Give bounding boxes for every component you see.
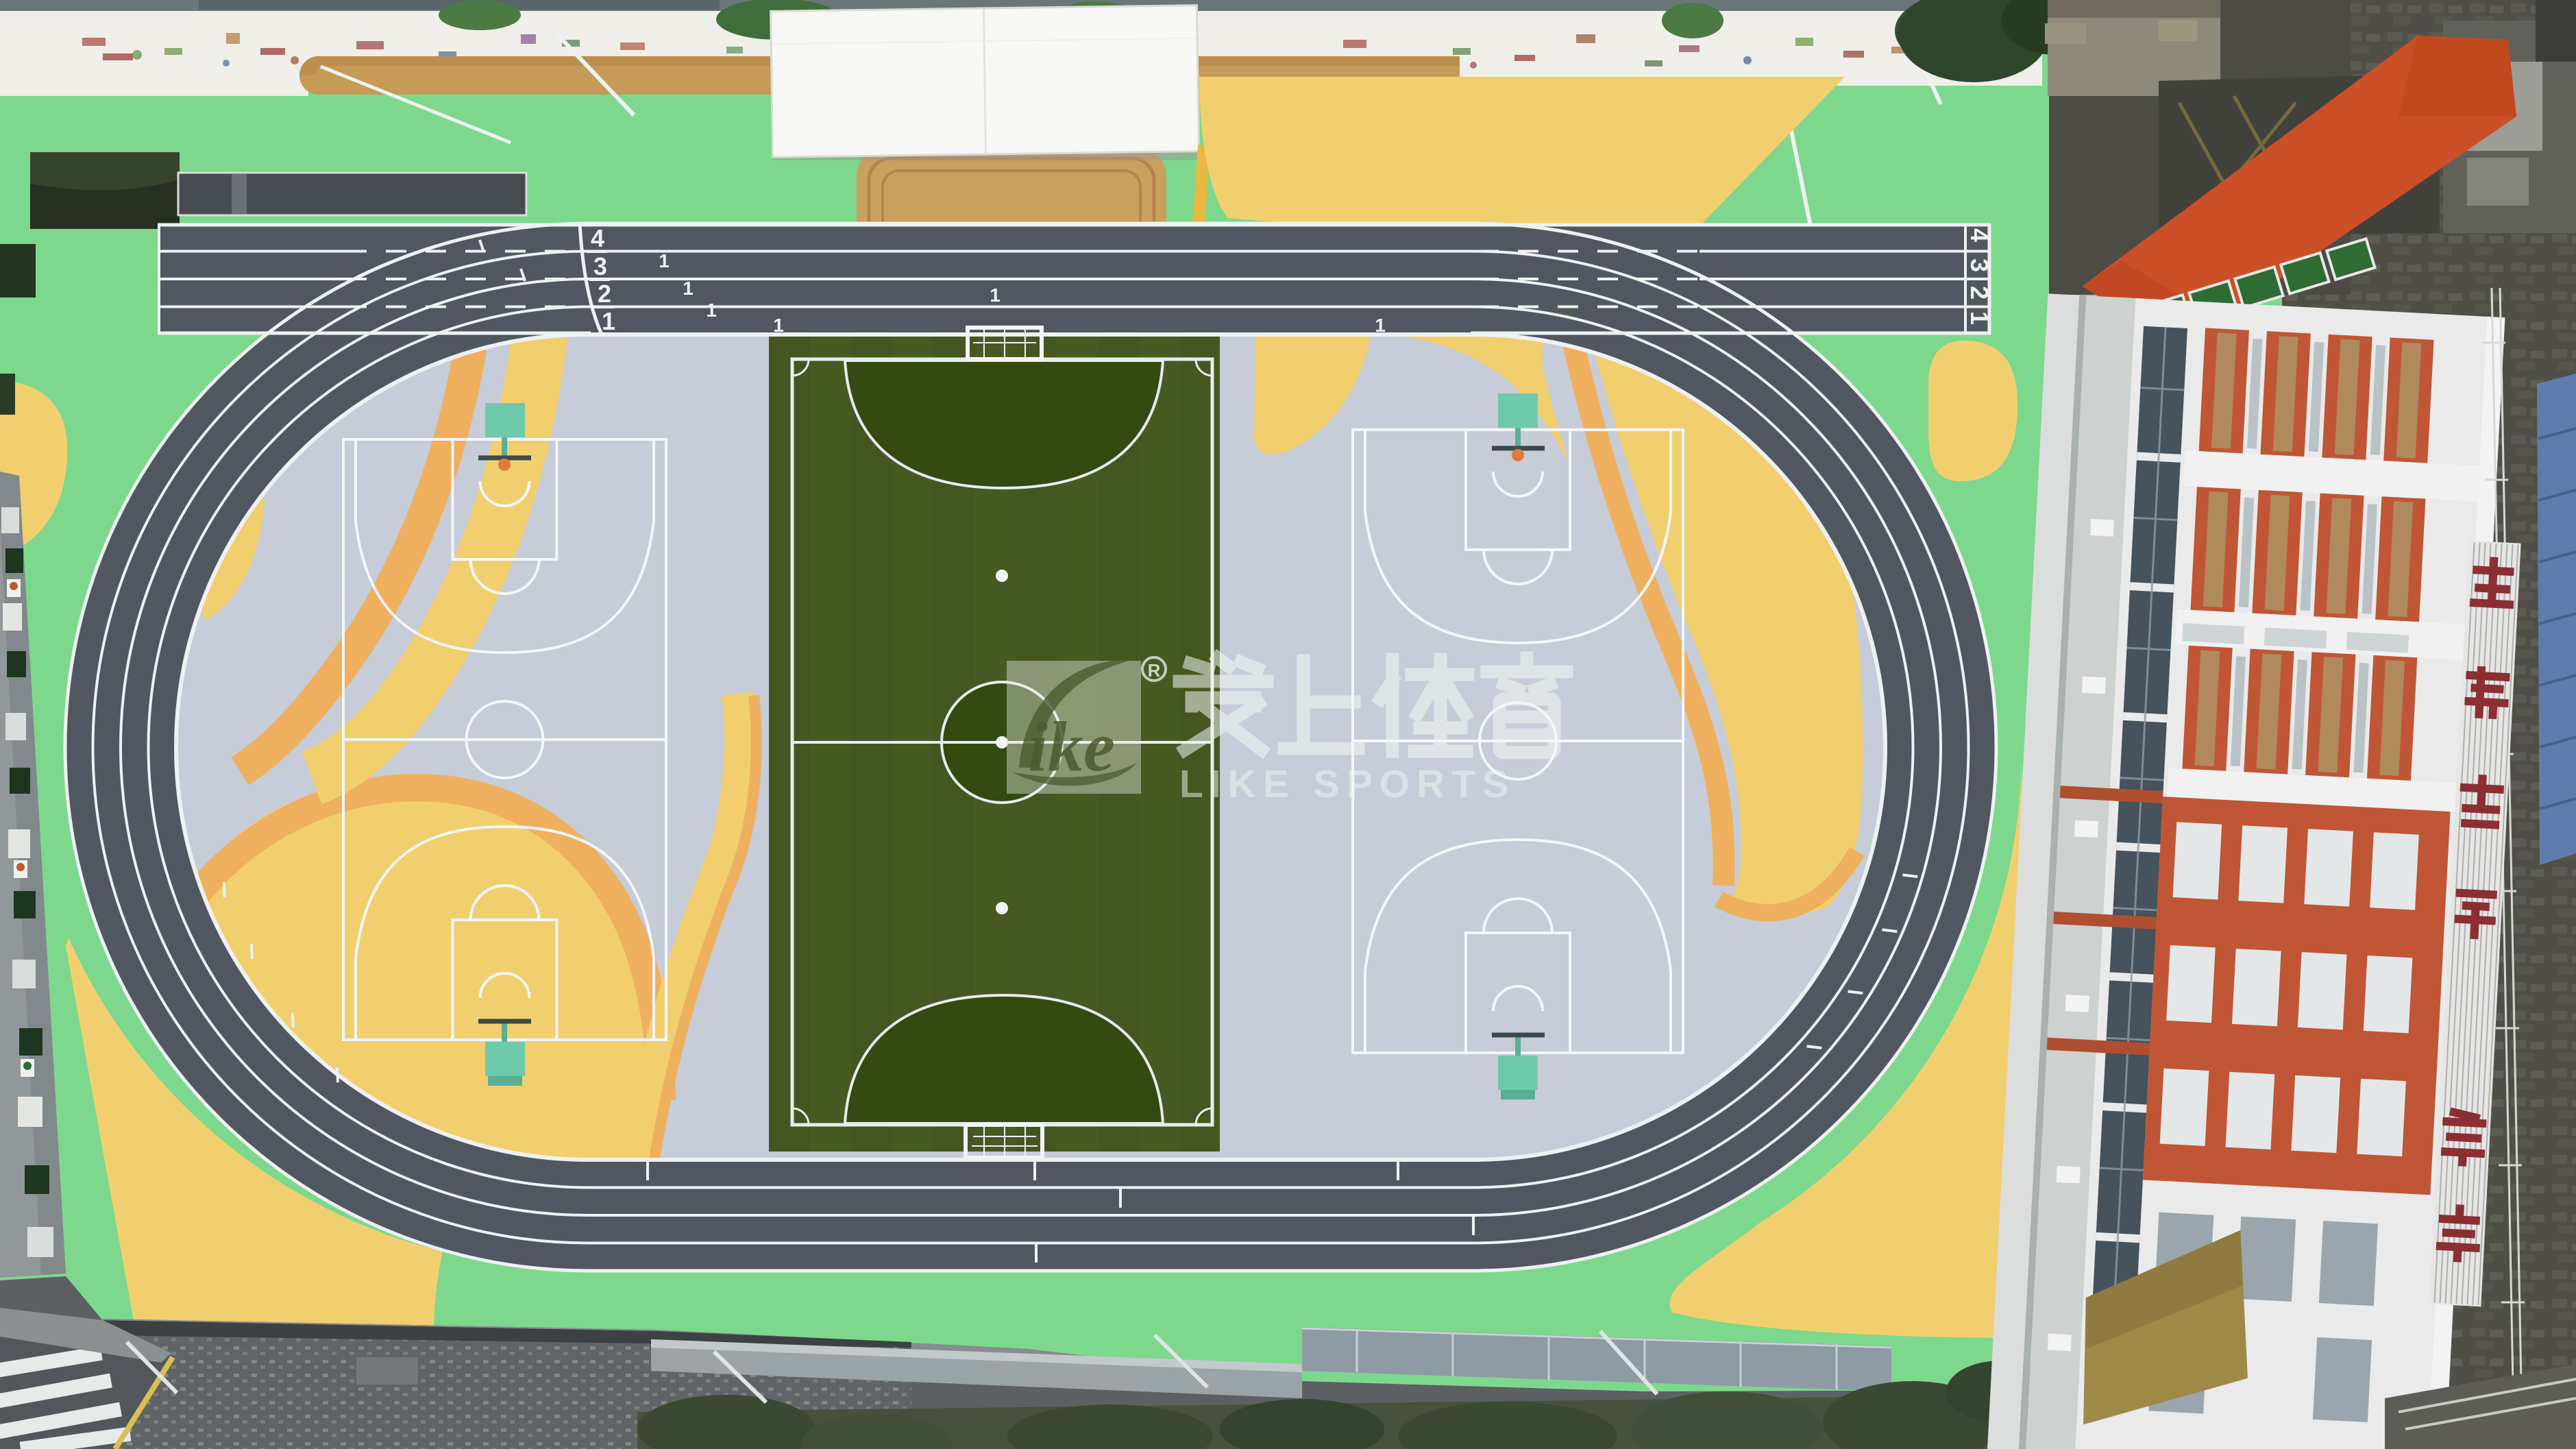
- svg-text:3: 3: [1965, 258, 1994, 272]
- svg-text:1: 1: [1375, 315, 1386, 336]
- svg-text:3: 3: [593, 252, 607, 280]
- svg-text:1: 1: [683, 278, 694, 299]
- svg-text:1: 1: [773, 315, 784, 336]
- svg-text:R: R: [1148, 660, 1161, 681]
- svg-text:2: 2: [1965, 286, 1994, 300]
- svg-text:1: 1: [1965, 311, 1994, 325]
- svg-text:ike: ike: [1028, 707, 1115, 786]
- svg-text:1: 1: [706, 300, 717, 321]
- svg-text:2: 2: [598, 280, 611, 308]
- svg-text:4: 4: [1965, 228, 1994, 242]
- svg-text:4: 4: [591, 224, 604, 252]
- svg-text:1: 1: [602, 307, 615, 335]
- svg-text:LIKE SPORTS: LIKE SPORTS: [1179, 762, 1515, 806]
- svg-text:1: 1: [659, 250, 670, 271]
- svg-text:1: 1: [990, 284, 1001, 306]
